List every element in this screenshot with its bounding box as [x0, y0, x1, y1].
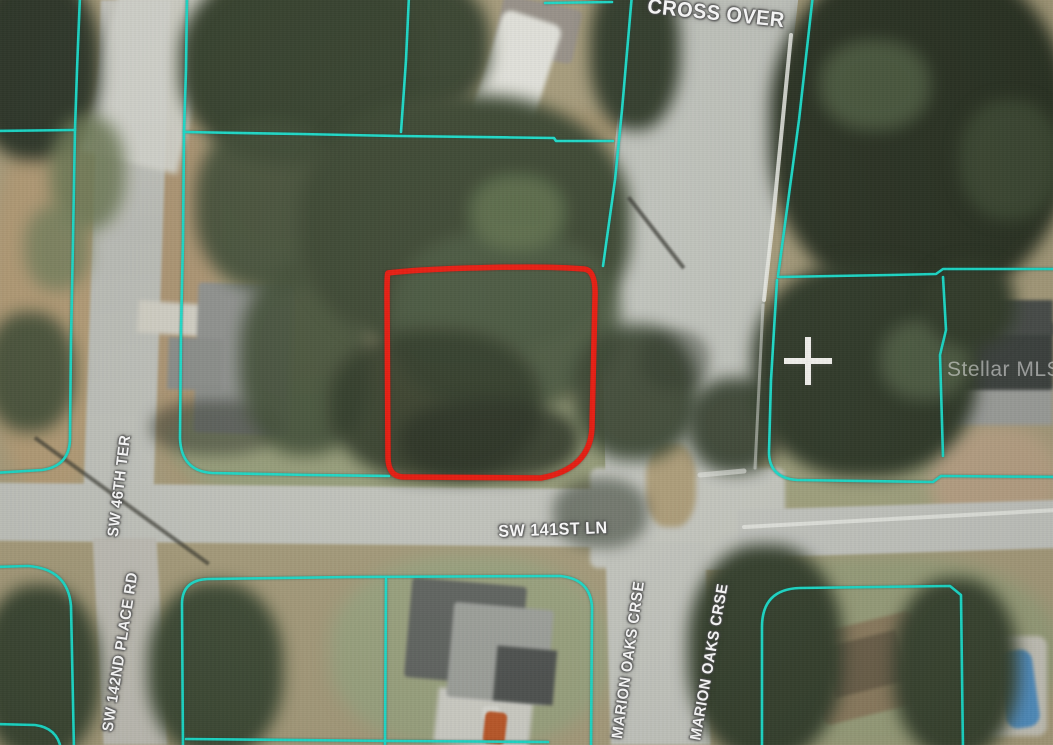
stellar-mls-watermark: Stellar MLS — [947, 358, 1053, 382]
tree-canopy — [688, 378, 783, 473]
shadow — [640, 330, 710, 390]
tree-canopy — [820, 40, 930, 130]
tree-canopy — [148, 582, 283, 745]
tree-canopy — [400, 400, 580, 480]
aerial-photo-layer — [0, 0, 1053, 745]
tree-canopy — [0, 585, 100, 745]
tree-canopy — [893, 578, 1018, 745]
parked-car — [482, 711, 507, 745]
tree-canopy — [470, 175, 565, 250]
tree-canopy — [960, 100, 1053, 220]
tree-canopy — [25, 205, 90, 290]
house-roof — [493, 645, 558, 705]
aerial-parcel-map: CROSS OVER SW 46TH TER SW 142ND PLACE RD… — [0, 0, 1053, 745]
house-roof — [167, 337, 224, 391]
tree-canopy — [925, 262, 1015, 347]
street-label-sw-141st-ln: SW 141ST LN — [498, 518, 608, 542]
tree-canopy — [0, 312, 75, 432]
